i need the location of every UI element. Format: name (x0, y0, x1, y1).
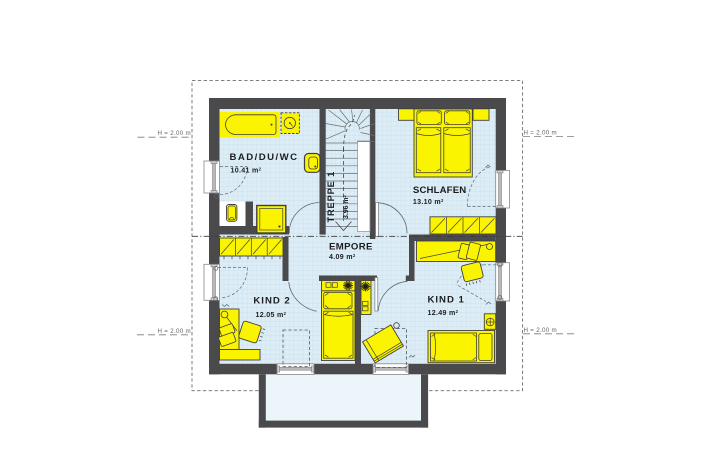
svg-text:13.10 m2: 13.10 m2 (413, 198, 444, 206)
svg-text:4.09 m2: 4.09 m2 (329, 253, 356, 261)
svg-text:EMPORE: EMPORE (329, 241, 373, 252)
svg-text:12.05 m2: 12.05 m2 (256, 311, 287, 319)
svg-text:BAD/DU/WC: BAD/DU/WC (230, 152, 299, 163)
svg-text:H = 2.00 m: H = 2.00 m (158, 328, 191, 335)
svg-text:KIND 1: KIND 1 (428, 294, 465, 305)
svg-text:10.41 m2: 10.41 m2 (231, 166, 262, 174)
svg-text:H = 2.00 m: H = 2.00 m (158, 130, 191, 137)
svg-text:12.49 m2: 12.49 m2 (428, 309, 459, 317)
svg-text:H = 2.00 m: H = 2.00 m (524, 130, 557, 137)
svg-text:H = 2.00 m: H = 2.00 m (524, 327, 557, 334)
svg-text:KIND 2: KIND 2 (253, 295, 290, 306)
svg-text:3.96 m2: 3.96 m2 (342, 195, 350, 219)
svg-text:SCHLAFEN: SCHLAFEN (413, 185, 466, 196)
svg-text:TREPPE 1: TREPPE 1 (326, 171, 336, 223)
